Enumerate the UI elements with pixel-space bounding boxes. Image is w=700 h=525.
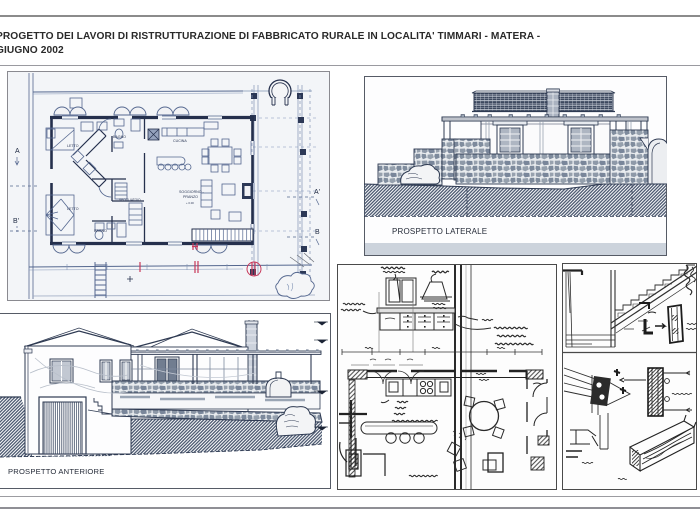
svg-text:SPOGLIATOIO: SPOGLIATOIO — [119, 198, 141, 202]
svg-text:BAGNO: BAGNO — [94, 229, 107, 233]
svg-text:BAGNO: BAGNO — [113, 135, 126, 139]
svg-text:A′: A′ — [314, 189, 321, 196]
svg-text:PRANZO: PRANZO — [183, 195, 198, 199]
svg-text:+ 0.00: + 0.00 — [186, 201, 194, 205]
svg-text:SOGGIORNO -: SOGGIORNO - — [179, 190, 205, 194]
svg-text:A: A — [15, 148, 20, 155]
svg-text:CUCINA: CUCINA — [173, 139, 187, 143]
svg-text:B: B — [315, 229, 320, 236]
svg-text:PROSPETTO ANTERIORE: PROSPETTO ANTERIORE — [8, 467, 105, 476]
svg-text:B′: B′ — [13, 218, 20, 225]
svg-text:PROSPETTO LATERALE: PROSPETTO LATERALE — [392, 227, 487, 236]
svg-text:LETTO: LETTO — [67, 144, 79, 148]
svg-text:LETTO: LETTO — [67, 207, 79, 211]
